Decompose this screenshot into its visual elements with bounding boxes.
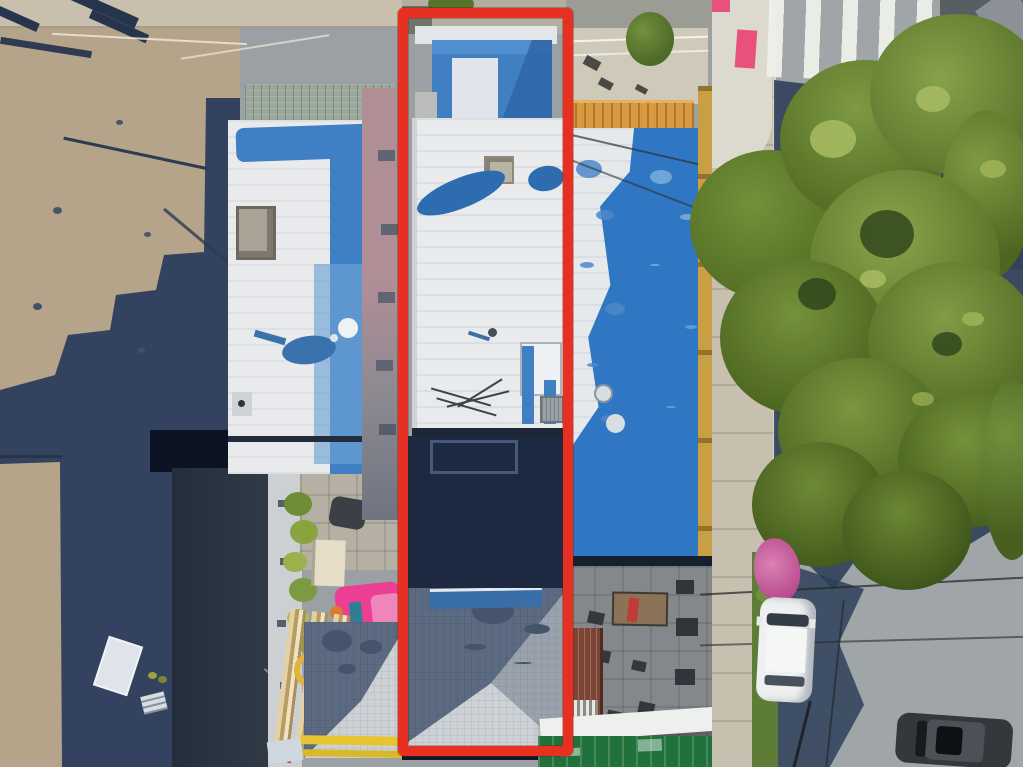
- white-suv: [755, 597, 819, 708]
- dark-roof: [172, 468, 268, 767]
- foliage-blob: [842, 470, 972, 590]
- yard-item: [148, 672, 157, 679]
- yellow-lumber-bars: [300, 735, 404, 746]
- tree-shadow-blob: [322, 630, 352, 652]
- suv-windshield: [766, 613, 809, 627]
- satellite-dish: [338, 318, 358, 338]
- foliage-dark-hole: [860, 210, 914, 258]
- suv-rear-glass: [764, 675, 804, 687]
- suv-roof: [765, 627, 807, 673]
- suv-mirrors: [756, 616, 762, 625]
- aerial-photo: [0, 0, 1023, 767]
- wall-ac-units: [378, 150, 395, 161]
- roof-box-dot: [238, 400, 245, 407]
- shed-box: [311, 539, 346, 586]
- foliage-highlight: [810, 120, 856, 158]
- garden-plants: [284, 492, 312, 516]
- sidewalk-top-strip: [0, 0, 415, 28]
- car-sunroof: [935, 726, 963, 756]
- left-roof-blue-wash: [314, 264, 368, 464]
- roof-vent-circles: [594, 384, 613, 403]
- blue-tarp: [267, 738, 304, 765]
- lot-debris: [116, 120, 123, 125]
- street-tree-canopy: [660, 0, 1023, 640]
- roof-edge-dark: [228, 436, 368, 442]
- pavement-seam: [0, 455, 62, 458]
- property-boundary-highlight: [398, 8, 573, 756]
- skylight-hatch: [236, 206, 276, 260]
- dark-car: [894, 712, 1015, 767]
